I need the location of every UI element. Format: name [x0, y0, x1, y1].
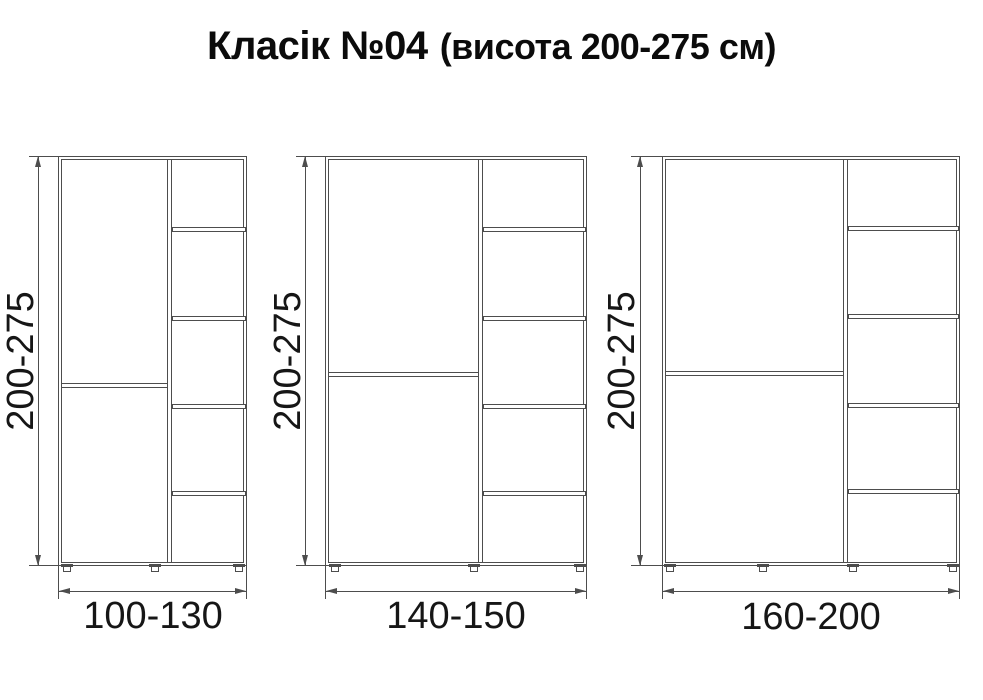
width-dimension-label: 140-150 — [386, 597, 525, 635]
shelf — [848, 226, 959, 231]
width-dimension-line — [662, 591, 960, 592]
cabinet-inner-frame — [61, 159, 244, 563]
dim-extension-line — [58, 566, 59, 599]
cabinet-foot — [233, 564, 245, 567]
cabinet-inner-frame — [328, 159, 584, 563]
shelf — [172, 227, 246, 232]
shelf — [172, 404, 246, 409]
shelf — [172, 316, 246, 321]
cabinet-outline — [662, 156, 960, 566]
dim-arrow-up — [637, 156, 643, 167]
cabinet-foot — [329, 564, 341, 567]
dim-arrow-right — [235, 588, 246, 594]
diagram-canvas: Класік №04(висота 200-275 см) 200-275 10… — [0, 0, 983, 700]
cabinet-foot — [947, 564, 959, 567]
dim-extension-tick — [296, 156, 327, 157]
shelf — [172, 491, 246, 496]
shelf — [848, 489, 959, 494]
dim-arrow-up — [35, 156, 41, 167]
dim-extension-line — [325, 566, 326, 599]
dim-arrow-right — [575, 588, 586, 594]
title-height-range: (висота 200-275 см) — [440, 26, 776, 67]
vertical-partition — [167, 159, 172, 563]
left-section-divider — [665, 371, 844, 376]
shelf — [483, 491, 586, 496]
shelf — [848, 314, 959, 319]
page-title: Класік №04(висота 200-275 см) — [0, 24, 983, 69]
shelf — [848, 403, 959, 408]
dim-arrow-up — [302, 156, 308, 167]
cabinet-outline — [58, 156, 247, 566]
dim-extension-tick — [631, 156, 663, 157]
dim-extension-line — [246, 566, 247, 599]
dim-arrow-left — [663, 588, 674, 594]
vertical-partition — [843, 159, 848, 563]
width-dimension-label: 160-200 — [741, 598, 880, 636]
dim-extension-tick — [29, 156, 60, 157]
left-section-divider — [61, 383, 168, 388]
cabinet-foot — [757, 564, 769, 567]
dim-arrow-right — [948, 588, 959, 594]
dim-extension-tick — [631, 565, 665, 566]
title-model-name: Класік №04 — [207, 24, 428, 68]
cabinet-foot — [847, 564, 859, 567]
width-dimension-line — [58, 591, 247, 592]
cabinet-foot — [664, 564, 676, 567]
cabinet-foot — [468, 564, 480, 567]
vertical-partition — [478, 159, 483, 563]
dim-arrow-left — [59, 588, 70, 594]
dim-extension-line — [662, 566, 663, 599]
width-dimension-line — [325, 591, 587, 592]
cabinet-foot — [574, 564, 586, 567]
cabinet-outline — [325, 156, 587, 566]
height-dimension-label: 200-275 — [2, 291, 40, 430]
height-dimension-label: 200-275 — [603, 291, 641, 430]
height-dimension-label: 200-275 — [269, 291, 307, 430]
dim-arrow-left — [326, 588, 337, 594]
width-dimension-label: 100-130 — [83, 597, 222, 635]
cabinet-inner-frame — [665, 159, 957, 563]
cabinet-foot — [149, 564, 161, 567]
shelf — [483, 404, 586, 409]
shelf — [483, 316, 586, 321]
dim-extension-line — [586, 566, 587, 599]
dim-extension-line — [959, 566, 960, 599]
left-section-divider — [328, 372, 479, 377]
shelf — [483, 227, 586, 232]
dim-extension-tick — [29, 565, 75, 566]
